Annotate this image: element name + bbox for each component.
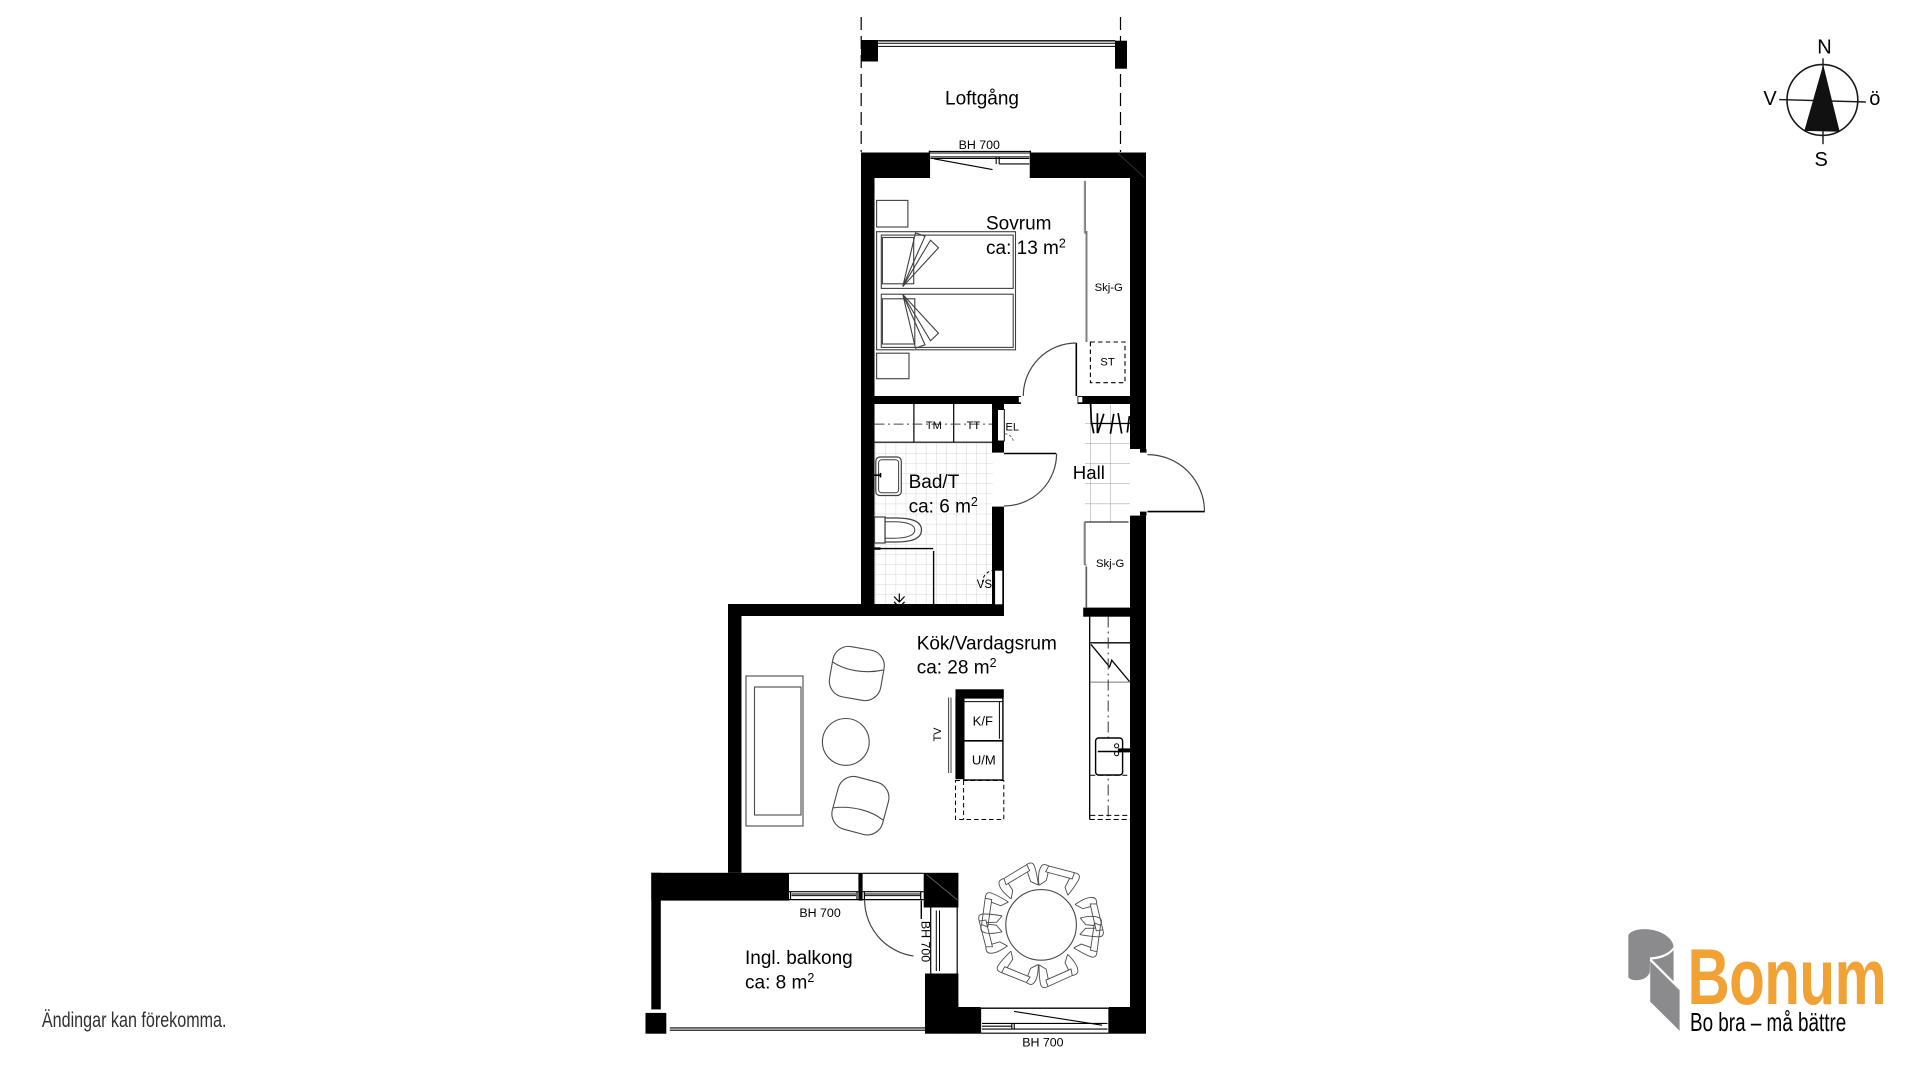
svg-text:Sovrum: Sovrum [986,214,1051,235]
svg-text:ö: ö [1869,88,1880,110]
svg-text:VS: VS [977,579,993,591]
svg-text:K/F: K/F [973,714,993,729]
svg-text:TV: TV [932,727,944,742]
svg-text:Hall: Hall [1073,462,1105,483]
svg-text:N: N [1817,36,1831,58]
svg-text:BH 700: BH 700 [919,921,933,962]
svg-text:ST: ST [1100,357,1115,369]
svg-text:Kök/Vardagsrum: Kök/Vardagsrum [917,633,1057,654]
svg-text:ca: 28 m2: ca: 28 m2 [917,656,997,679]
svg-text:BH 700: BH 700 [799,906,840,920]
svg-text:S: S [1815,149,1828,171]
svg-text:Ändingar kan förekomma.: Ändingar kan förekomma. [42,1009,227,1033]
svg-text:TM: TM [926,420,942,432]
svg-text:BH 700: BH 700 [959,138,1000,152]
svg-text:ca: 6 m2: ca: 6 m2 [909,495,978,518]
svg-text:ca: 8 m2: ca: 8 m2 [745,971,814,994]
svg-text:EL: EL [1006,422,1019,434]
svg-text:V: V [1763,88,1777,110]
svg-text:Bad/T: Bad/T [909,472,960,493]
svg-text:TT: TT [967,420,981,432]
svg-text:BH 700: BH 700 [1022,1036,1063,1050]
svg-text:ca: 13 m2: ca: 13 m2 [986,237,1066,260]
svg-text:U/M: U/M [972,753,996,768]
svg-text:Skj-G: Skj-G [1095,282,1123,294]
svg-text:Skj-G: Skj-G [1096,558,1124,570]
svg-text:Loftgång: Loftgång [945,89,1019,110]
svg-text:Ingl. balkong: Ingl. balkong [745,948,853,969]
svg-text:Bo bra – må bättre: Bo bra – må bättre [1690,1008,1846,1036]
